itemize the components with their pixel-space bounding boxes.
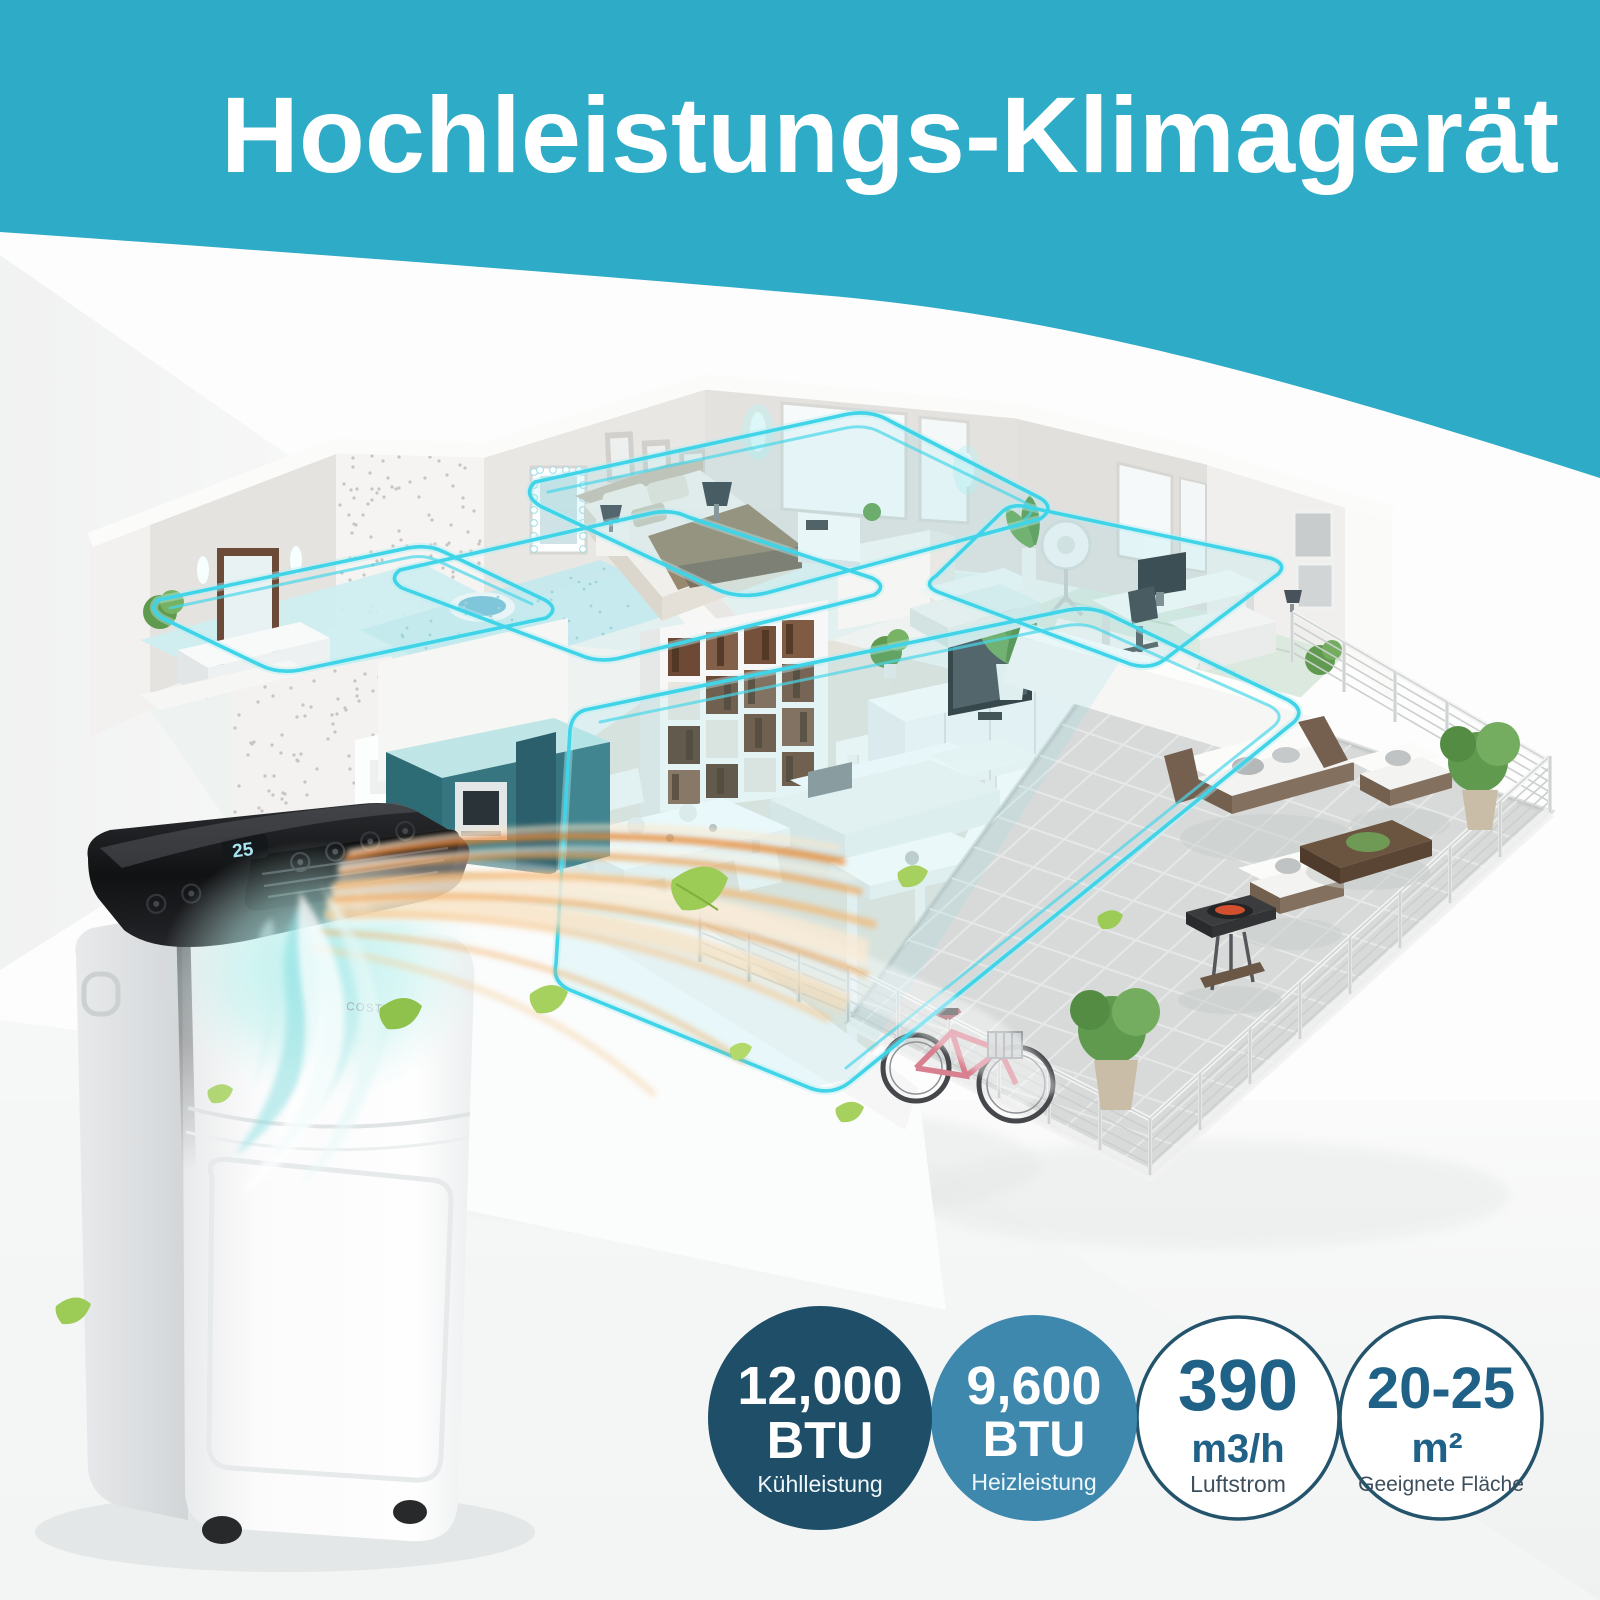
svg-text:Heizleistung: Heizleistung [971, 1469, 1096, 1495]
svg-text:9,600: 9,600 [966, 1356, 1101, 1416]
svg-text:12,000: 12,000 [737, 1356, 902, 1416]
svg-text:m²: m² [1411, 1424, 1462, 1471]
svg-text:20-25: 20-25 [1367, 1356, 1515, 1421]
svg-text:Kühlleistung: Kühlleistung [757, 1471, 882, 1497]
svg-text:Luftstrom: Luftstrom [1190, 1471, 1286, 1497]
svg-text:390: 390 [1178, 1346, 1298, 1426]
svg-text:Geeignete Fläche: Geeignete Fläche [1358, 1473, 1524, 1496]
svg-text:BTU: BTU [767, 1412, 874, 1470]
svg-text:BTU: BTU [983, 1411, 1086, 1467]
svg-text:m3/h: m3/h [1191, 1427, 1284, 1471]
svg-text:Hochleistungs-Klimagerät: Hochleistungs-Klimagerät [221, 74, 1559, 195]
